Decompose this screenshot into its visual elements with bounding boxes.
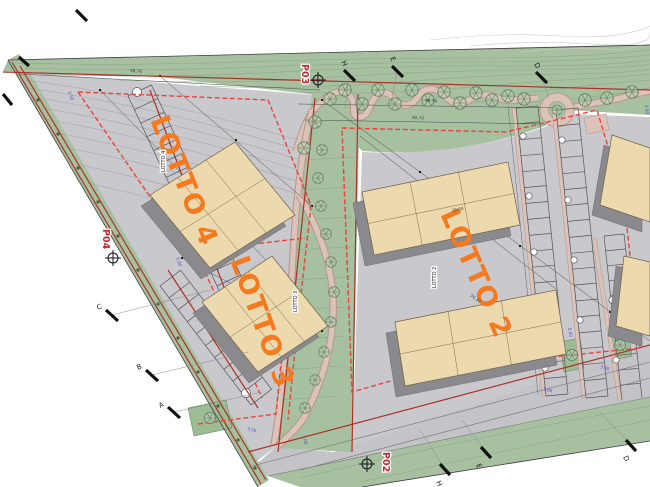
section-label-bottom-d: D xyxy=(621,454,631,462)
dim-top-main: 98.76 xyxy=(425,98,437,103)
survey-label-p03: P03 xyxy=(299,64,310,84)
dim-blue-6: 2.50 xyxy=(644,105,650,115)
site-plan-canvas[interactable]: LOTTO 4 LOTTO 3 LOTTO 2 LOTTO 4 LOTTO 3 … xyxy=(0,0,650,487)
survey-symbol-p04 xyxy=(105,250,121,266)
lot-sublabel-lotto3: LOTTO 3 xyxy=(293,291,299,312)
lot-sublabel-lotto4: LOTTO 4 xyxy=(161,151,167,172)
dim-boundary: 98.76 xyxy=(130,68,143,74)
dim-top-secondary: 90.70 xyxy=(412,115,424,120)
lot-sublabel-lotto2: LOTTO 2 xyxy=(432,267,438,288)
section-label-left-c: C xyxy=(95,302,103,311)
site-plan-drawing: LOTTO 4 LOTTO 3 LOTTO 2 LOTTO 4 LOTTO 3 … xyxy=(0,0,650,487)
survey-label-p04: P04 xyxy=(100,229,111,250)
section-label-left-b: B xyxy=(135,362,143,371)
survey-label-p02: P02 xyxy=(380,452,391,472)
section-label-bottom-h: H xyxy=(434,479,443,487)
section-label-left-a: A xyxy=(157,400,165,409)
